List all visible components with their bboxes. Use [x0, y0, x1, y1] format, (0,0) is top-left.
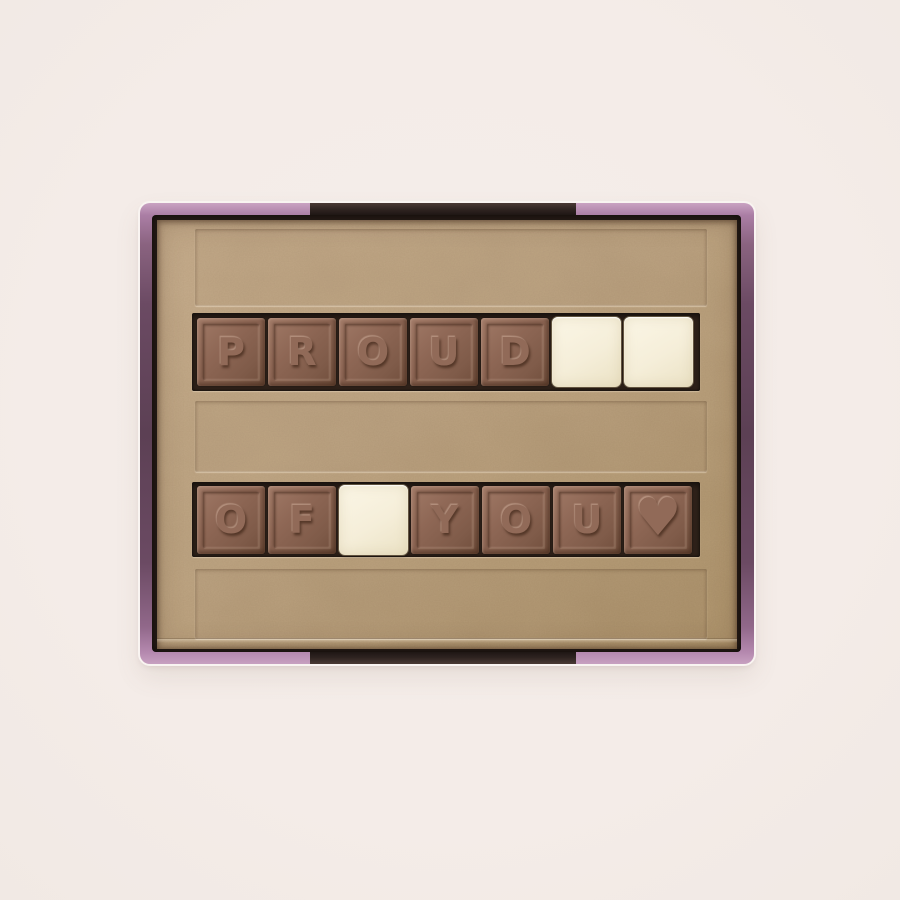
- milk-chocolate-tile-o: O: [482, 486, 550, 554]
- white-chocolate-blank-tile: [552, 317, 621, 387]
- chocolate-gift-box: PROUD OFYOU♥: [140, 203, 754, 664]
- paper-fold-edge: [157, 638, 737, 643]
- tile-letter: O: [339, 318, 407, 386]
- milk-chocolate-tile-o: O: [197, 486, 265, 554]
- chocolate-tile-row-2: OFYOU♥: [192, 482, 700, 557]
- tile-letter: O: [482, 486, 550, 554]
- tray-panel-bottom: [195, 569, 707, 639]
- tile-letter: P: [197, 318, 265, 386]
- white-chocolate-blank-tile: [624, 317, 693, 387]
- milk-chocolate-tile-o: O: [339, 318, 407, 386]
- tile-letter: Y: [411, 486, 479, 554]
- milk-chocolate-tile-p: P: [197, 318, 265, 386]
- tile-letter: D: [481, 318, 549, 386]
- milk-chocolate-tile-r: R: [268, 318, 336, 386]
- milk-chocolate-tile-u: U: [410, 318, 478, 386]
- chocolate-tile-row-1: PROUD: [192, 313, 700, 391]
- rim-notch-bottom: [310, 652, 576, 664]
- tile-letter: U: [410, 318, 478, 386]
- tile-letter: R: [268, 318, 336, 386]
- tile-letter: O: [197, 486, 265, 554]
- milk-chocolate-tile-u: U: [553, 486, 621, 554]
- tile-letter: U: [553, 486, 621, 554]
- scene: PROUD OFYOU♥: [0, 0, 900, 900]
- kraft-paper-liner: PROUD OFYOU♥: [157, 220, 737, 649]
- heart-icon: ♥: [624, 486, 692, 554]
- rim-notch-top: [310, 203, 576, 215]
- milk-chocolate-tile-y: Y: [411, 486, 479, 554]
- milk-chocolate-tile-f: F: [268, 486, 336, 554]
- tray-panel-top: [195, 229, 707, 306]
- milk-chocolate-tile-d: D: [481, 318, 549, 386]
- white-chocolate-blank-tile: [339, 485, 408, 555]
- tray-panel-middle: [195, 401, 707, 472]
- milk-chocolate-tile-heart: ♥: [624, 486, 692, 554]
- tile-letter: F: [268, 486, 336, 554]
- box-inner-shadow: PROUD OFYOU♥: [152, 215, 741, 652]
